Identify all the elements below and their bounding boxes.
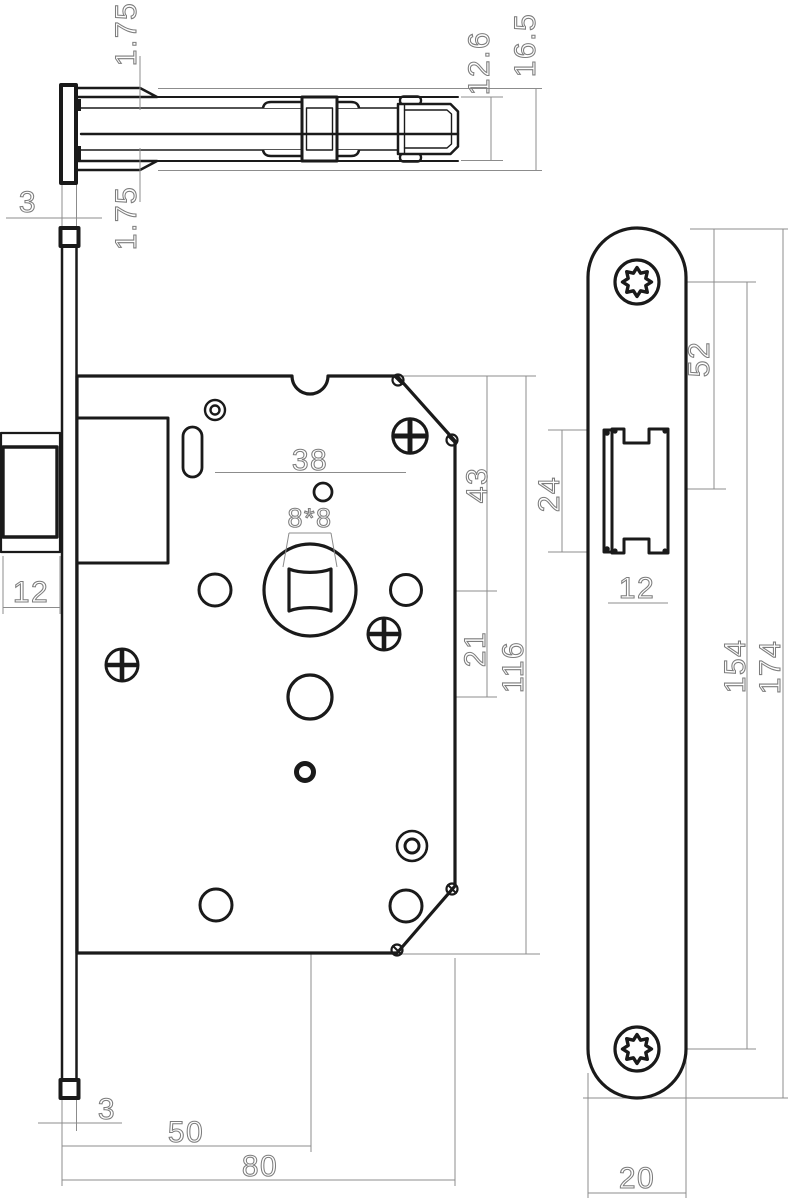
front-view-lock-case: 38 8*8 43 21 116 12 3 50: [1, 228, 540, 1186]
dim-label: 116: [497, 641, 530, 693]
dim-154: 154: [719, 282, 752, 1049]
top-view-latch-assembly: 1.75 1.75 3 12.6 16.5: [6, 2, 542, 250]
dim-label: 20: [619, 1162, 655, 1195]
dim-label: 12: [13, 576, 49, 609]
faceplate-clip-upper: [76, 99, 81, 111]
phillips-screw-left: [106, 649, 138, 681]
latch-body-section: [612, 429, 668, 553]
dim-label: 50: [168, 1116, 204, 1149]
faceplate-cap-top: [61, 228, 79, 246]
dim-12-6: 12.6: [463, 31, 496, 161]
dim-label: 8*8: [287, 503, 332, 533]
dim-43: 43: [461, 376, 494, 591]
phillips-screw-top-right: [393, 419, 427, 453]
dim-52: 52: [683, 229, 716, 489]
dim-21: 21: [459, 591, 492, 697]
phillips-screw-middle: [368, 618, 400, 650]
dim-label: 16.5: [509, 13, 542, 77]
section-dot: [662, 548, 667, 553]
dim-174: 174: [754, 229, 787, 1098]
dim-label: 1.75: [110, 2, 143, 66]
drawing-sheet: 1.75 1.75 3 12.6 16.5: [0, 0, 789, 1200]
dim-80: 80: [62, 1150, 455, 1183]
faceplate-edge: [62, 246, 77, 1080]
latch-bolt-body: [77, 418, 168, 563]
dim-label: 3: [98, 1093, 116, 1126]
dim-20: 20: [588, 1162, 686, 1195]
faceplate-top-view: [61, 85, 76, 183]
dim-label: 52: [683, 341, 716, 377]
dim-label: 38: [292, 444, 328, 477]
faceplate-cap-bottom: [61, 1080, 79, 1098]
latch-slider-block: [302, 97, 337, 161]
dim-label: 154: [719, 639, 752, 694]
lock-drawing: 1.75 1.75 3 12.6 16.5: [0, 0, 789, 1200]
dim-label: 21: [459, 631, 492, 667]
dim-label: 174: [754, 640, 787, 695]
dim-116: 116: [497, 376, 530, 954]
dim-label: 24: [533, 476, 566, 512]
latch-flange-top: [76, 88, 157, 97]
dim-label: 12.6: [463, 31, 496, 95]
faceplate-clip-lower: [76, 146, 81, 161]
dim-label: 1.75: [110, 186, 143, 250]
dim-3-top: 3: [6, 186, 102, 219]
section-dot: [662, 428, 667, 433]
dim-16-5: 16.5: [509, 13, 542, 171]
faceplate-plate: [588, 228, 686, 1098]
section-dot: [612, 428, 617, 433]
latch-head-front-inner: [3, 447, 57, 537]
section-dot: [612, 548, 617, 553]
section-dot: [604, 430, 610, 436]
dim-label: 43: [461, 467, 494, 503]
latch-flange-bottom: [76, 161, 157, 170]
dim-label: 3: [19, 186, 37, 219]
dim-label: 12: [619, 572, 655, 605]
dim-24: 24: [533, 430, 566, 552]
section-dot: [604, 546, 610, 552]
dim-12-front: 12: [3, 576, 60, 609]
side-view-faceplate: 52 24 12 154 174 20: [533, 228, 788, 1198]
latch-cross-section: [604, 428, 668, 553]
dim-label: 80: [242, 1150, 278, 1183]
